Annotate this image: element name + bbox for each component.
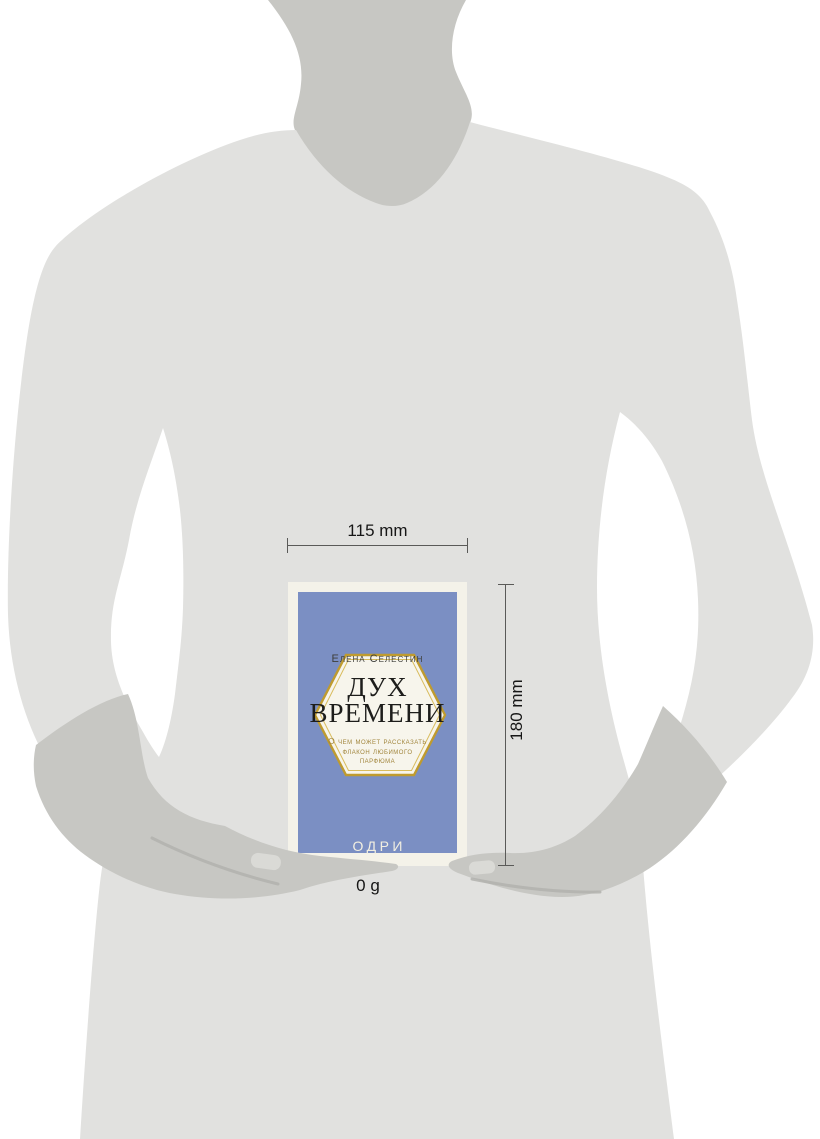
human-silhouette <box>0 0 820 1139</box>
author-name: Елена Селестин <box>288 653 467 665</box>
book-title: ДУХ ВРЕМЕНИ <box>288 674 467 726</box>
book-subtitle-line2: флакон любимого <box>342 746 412 756</box>
book-subtitle-line3: парфюма <box>360 755 395 765</box>
width-dimension-label: 115 mm <box>287 521 468 541</box>
publisher-logo: ОДРИ <box>288 838 467 854</box>
weight-label: 0 g <box>356 876 380 896</box>
book-subtitle: О чем может рассказать флакон любимого п… <box>288 737 467 766</box>
height-dimension-label: 180 mm <box>507 679 527 740</box>
book-size-comparison-illustration: Елена Селестин ДУХ ВРЕМЕНИ О чем может р… <box>0 0 820 1139</box>
book-cover: Елена Селестин ДУХ ВРЕМЕНИ О чем может р… <box>288 582 467 866</box>
height-dimension-line <box>505 584 506 866</box>
book-subtitle-line1: О чем может рассказать <box>328 736 427 746</box>
width-dimension-line <box>287 545 468 546</box>
book-title-line2: ВРЕМЕНИ <box>309 698 445 728</box>
